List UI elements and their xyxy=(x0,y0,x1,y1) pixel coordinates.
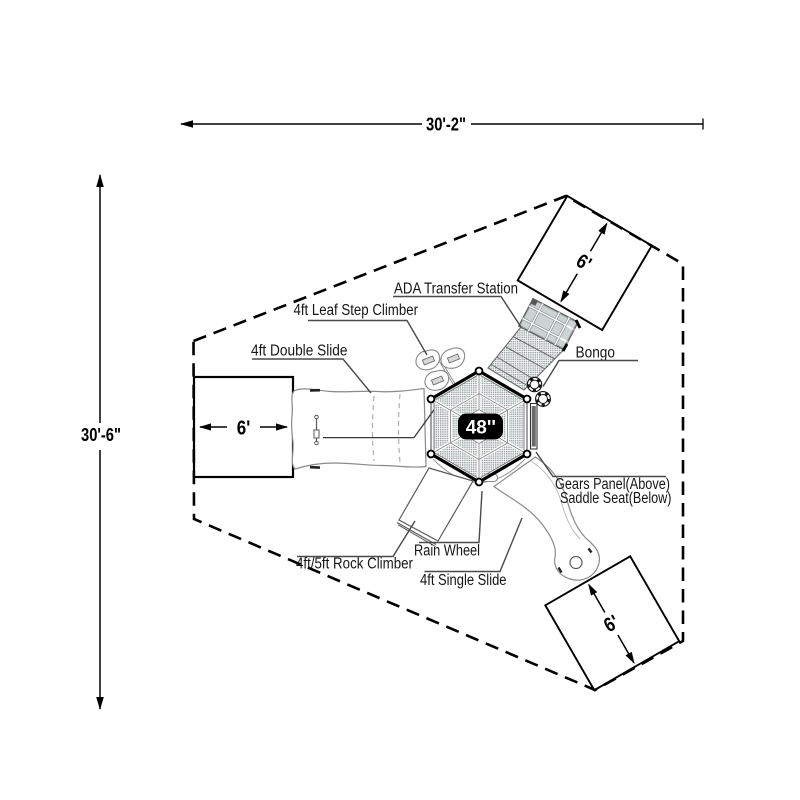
svg-text:ADA Transfer Station: ADA Transfer Station xyxy=(394,281,518,298)
svg-text:30'-2": 30'-2" xyxy=(426,115,466,135)
svg-text:4ft Leaf Step Climber: 4ft Leaf Step Climber xyxy=(294,302,419,319)
svg-text:Rain Wheel: Rain Wheel xyxy=(414,543,480,560)
svg-text:48'': 48'' xyxy=(466,418,496,439)
svg-text:4ft/5ft Rock Climber: 4ft/5ft Rock Climber xyxy=(296,556,413,573)
svg-text:30'-6": 30'-6" xyxy=(81,425,121,445)
svg-text:6': 6' xyxy=(237,418,251,440)
svg-text:4ft Double Slide: 4ft Double Slide xyxy=(251,343,348,360)
svg-text:Saddle Seat(Below): Saddle Seat(Below) xyxy=(560,490,672,507)
svg-text:Bongo: Bongo xyxy=(576,345,616,362)
svg-text:4ft Single Slide: 4ft Single Slide xyxy=(420,572,507,589)
